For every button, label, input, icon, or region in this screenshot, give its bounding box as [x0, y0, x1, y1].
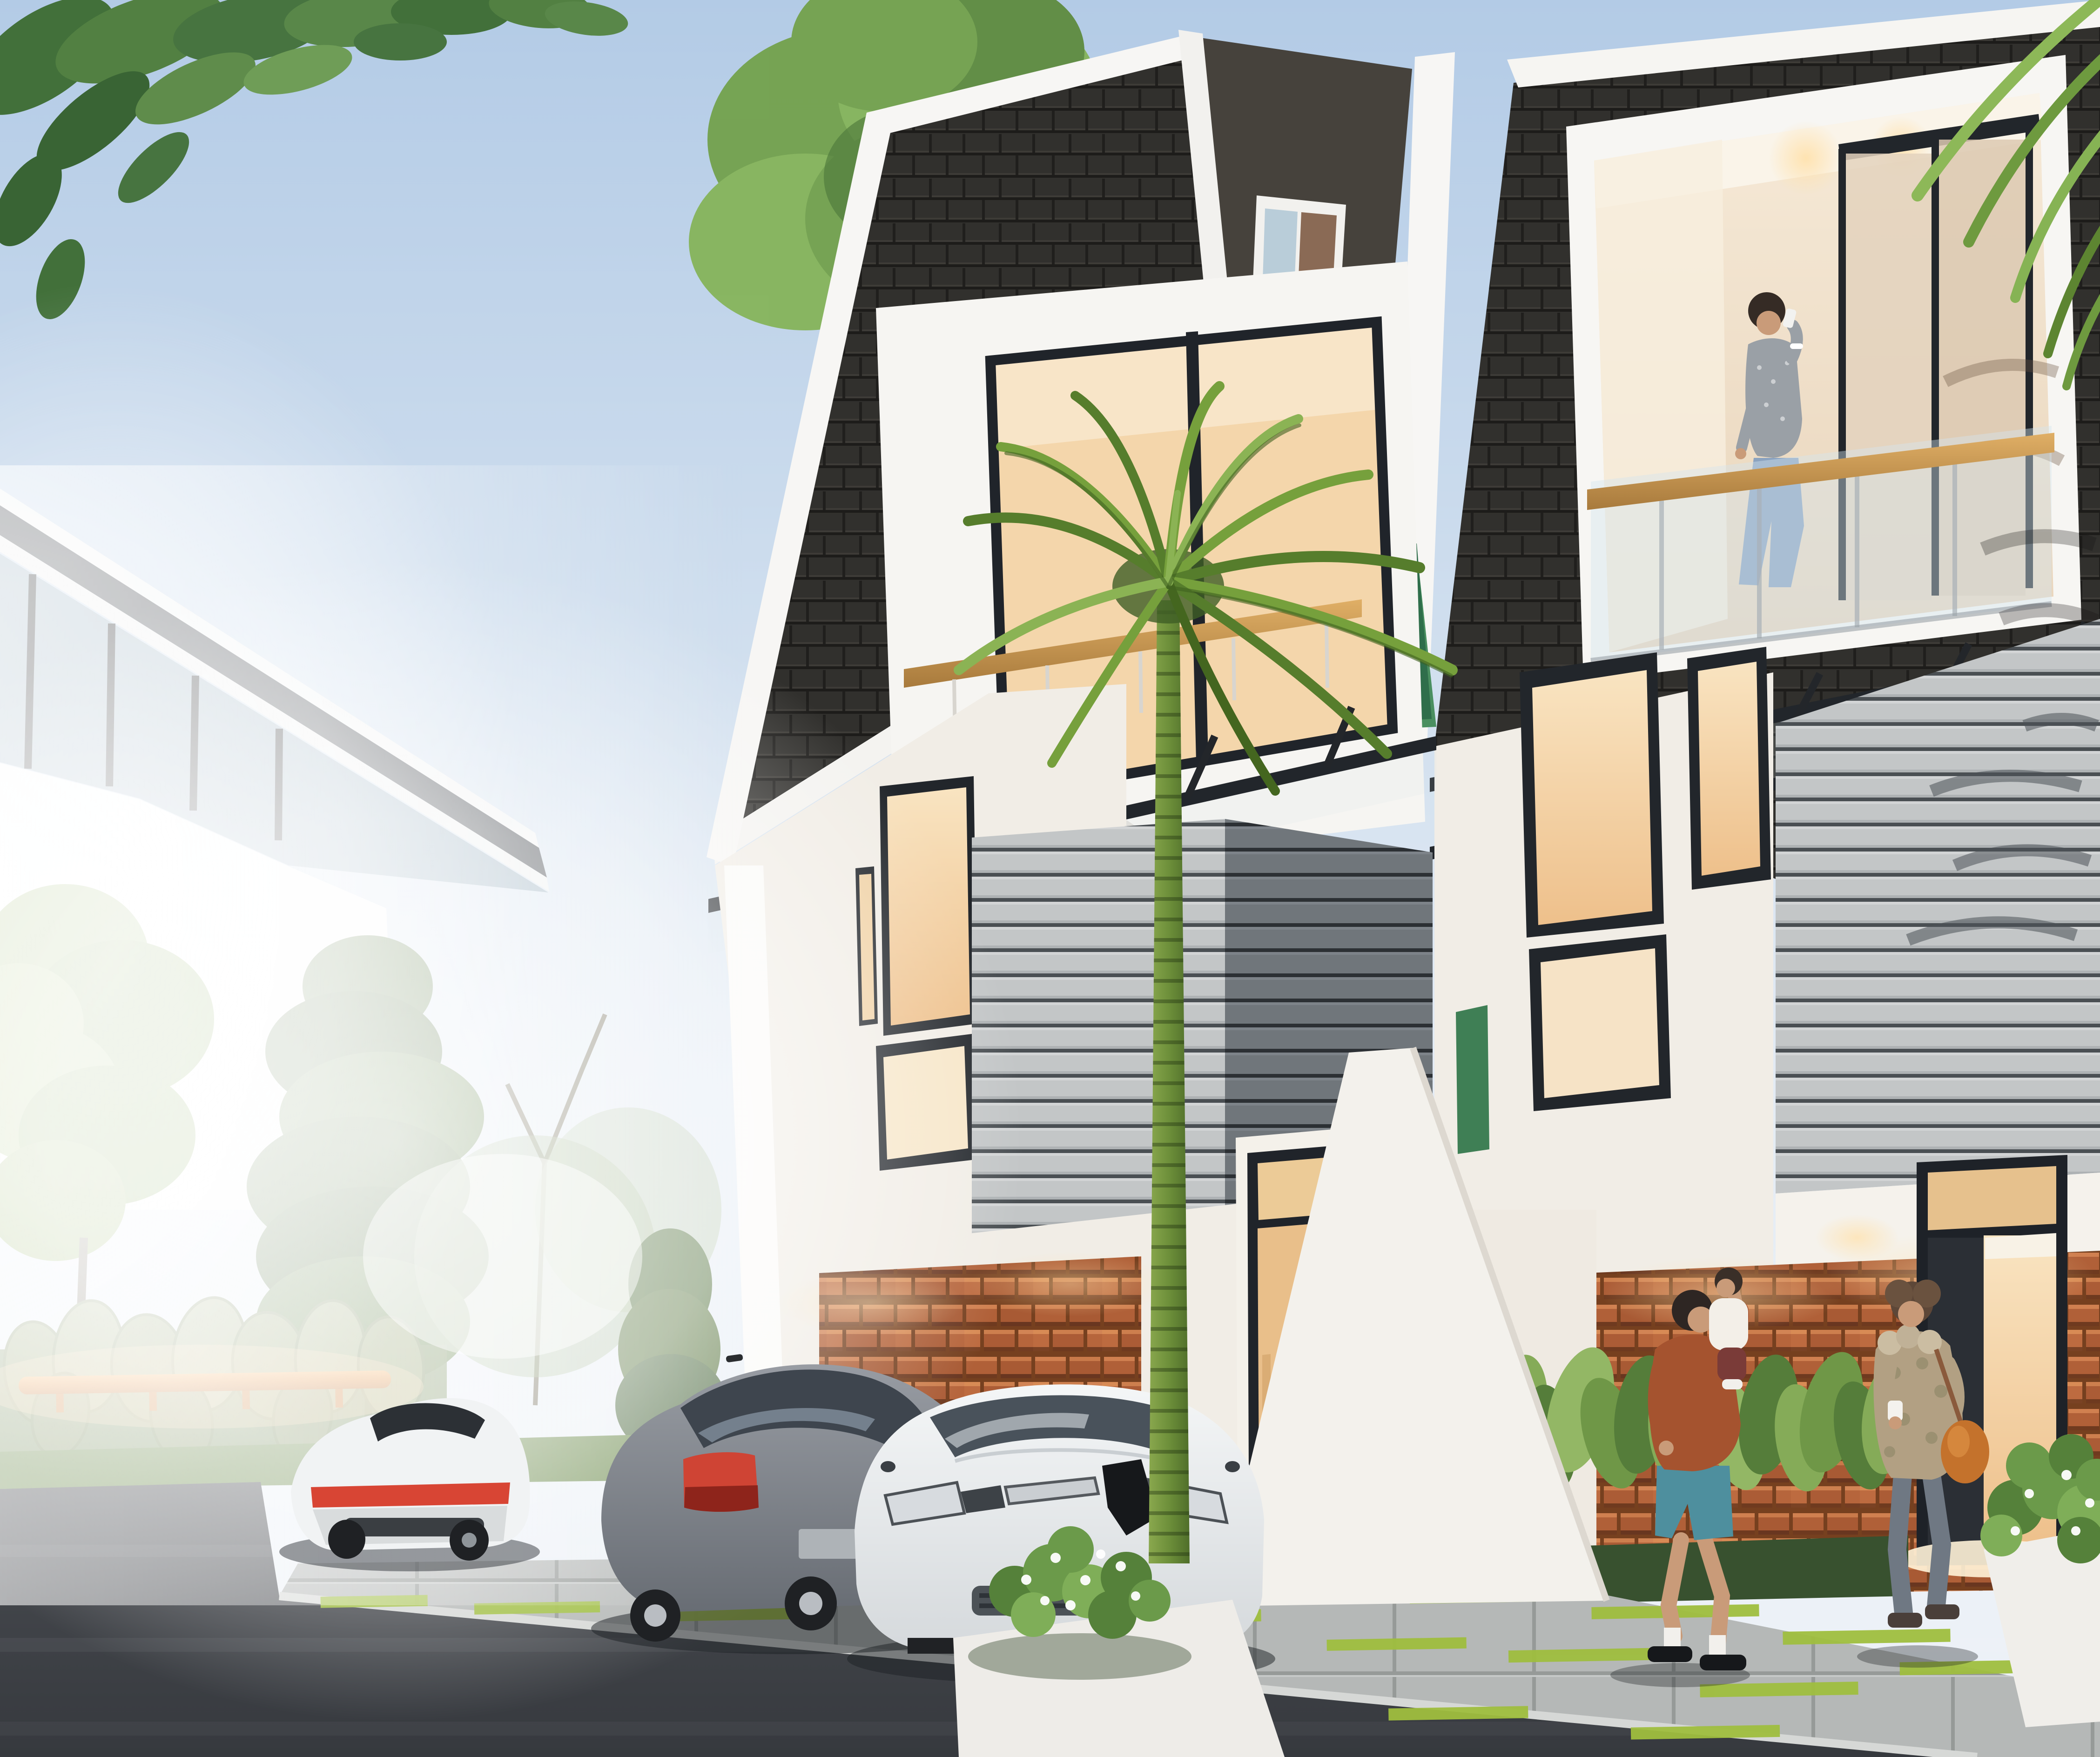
coupe-wheel: [328, 1520, 365, 1559]
woman-leg: [1932, 1475, 1942, 1606]
bracelet: [1790, 343, 1803, 349]
child-face: [1716, 1279, 1735, 1297]
architectural-rendering: [0, 0, 2100, 1757]
man-shoe: [1700, 1655, 1746, 1670]
child-top: [1709, 1298, 1748, 1350]
balcony-interior: [1587, 93, 2062, 661]
downlight-glow: [1769, 121, 1843, 195]
man-sock: [1664, 1628, 1681, 1648]
woman-arm: [1792, 326, 1797, 358]
warm-window: [1532, 670, 1652, 925]
woman-leg: [1897, 1475, 1904, 1613]
man-shoe: [1648, 1646, 1692, 1662]
door-transom: [1928, 1166, 2056, 1230]
woman-face: [1898, 1301, 1924, 1327]
woman-shoe: [1888, 1613, 1922, 1628]
man-shorts: [1655, 1466, 1733, 1540]
warm-window: [1698, 662, 1760, 876]
scene-canvas: [0, 0, 2100, 1757]
woman-shoe: [1925, 1604, 1959, 1619]
woman-face: [1757, 311, 1781, 335]
man-leg: [1669, 1540, 1681, 1636]
child-pants: [1717, 1348, 1746, 1381]
child-shoe: [1722, 1379, 1743, 1389]
man-sock: [1709, 1635, 1726, 1656]
warm-window: [1541, 948, 1659, 1098]
